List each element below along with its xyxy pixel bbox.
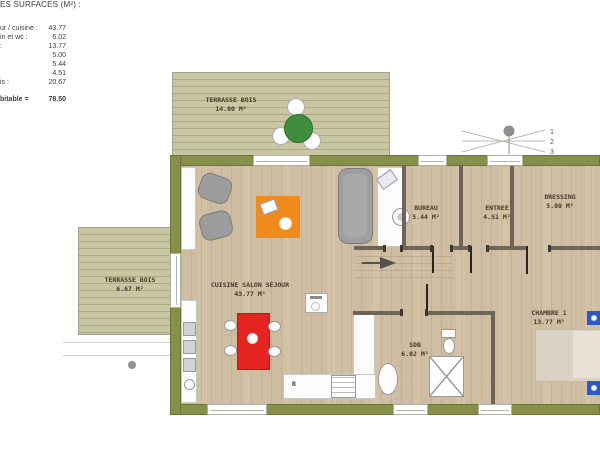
window	[253, 155, 310, 166]
corridor-line	[356, 256, 452, 257]
door-leaf	[526, 246, 528, 274]
door-jamb	[548, 245, 551, 252]
room-label-terrasse-top: TERRASSE BOIS 14.00 M²	[206, 96, 257, 114]
door-jamb	[450, 245, 453, 252]
bed-pillow-zone	[573, 331, 600, 378]
table-row: 4.51	[0, 69, 66, 78]
rug-bowl	[279, 217, 292, 230]
table-row: ur / cuisine :43.77	[0, 24, 66, 33]
corridor-line	[356, 277, 452, 278]
site-line	[63, 342, 170, 343]
partition	[354, 246, 385, 250]
partition	[459, 166, 463, 250]
toilet-tank	[441, 329, 456, 338]
window	[207, 404, 267, 415]
partition	[427, 311, 495, 315]
table-row: is :20.67	[0, 78, 66, 87]
window	[478, 404, 512, 415]
surface-table-rows: ur / cuisine :43.77 in et wc :6.02 :13.7…	[0, 24, 66, 104]
kitchen-sink	[184, 379, 195, 390]
toilet-bowl	[443, 338, 455, 354]
floor-plan-page: ES SURFACES (M²) : ur / cuisine :43.77 i…	[0, 0, 600, 450]
kitchen-counter-vertical	[353, 313, 375, 375]
window-detail-marker: 1 2 3	[455, 120, 565, 162]
table-row: 5.44	[0, 60, 66, 69]
marker-number: 1	[550, 129, 554, 136]
partition	[488, 246, 528, 250]
oven-hatch	[331, 375, 356, 398]
room-label-sejour: CUISINE SALON SÉJOUR 43.77 M²	[211, 281, 289, 299]
door-jamb	[486, 245, 489, 252]
door-jamb	[383, 245, 386, 252]
room-label-sdb: SDB 6.02 M²	[401, 341, 428, 359]
site-line	[63, 355, 170, 356]
room-label-bureau: BUREAU 5.44 M²	[412, 204, 439, 222]
window	[418, 155, 447, 166]
sofa-seat	[343, 174, 367, 237]
washbasin	[378, 363, 398, 395]
partition	[353, 311, 403, 315]
corridor-line	[356, 270, 452, 271]
door-jamb	[468, 245, 471, 252]
table-row: :13.77	[0, 42, 66, 51]
nightstand-lamp	[591, 385, 597, 391]
wood-stove-ring	[311, 302, 320, 311]
table-total-row: bitable =78.50	[0, 95, 66, 104]
kitchen-appliance	[183, 340, 196, 354]
glazed-door	[170, 253, 181, 308]
room-label-dressing: DRESSING 5.00 M²	[544, 193, 575, 211]
direction-arrow-icon	[380, 257, 396, 269]
detail-circle-icon	[504, 126, 515, 137]
room-label-chambre1: CHAMBRE 1 13.77 M²	[531, 309, 566, 327]
direction-arrow-tail	[362, 262, 382, 264]
site-dot	[128, 361, 136, 369]
door-leaf	[426, 284, 428, 311]
shower	[429, 356, 464, 397]
door-jamb	[400, 245, 403, 252]
table-row: 5.00	[0, 51, 66, 60]
kitchen-appliance	[183, 358, 196, 372]
marker-number: 3	[550, 149, 554, 156]
window	[393, 404, 428, 415]
partition	[491, 311, 495, 404]
room-label-entree: ENTREE 4.51 M²	[483, 204, 510, 222]
dining-plate	[247, 333, 258, 344]
kitchen-appliance	[183, 322, 196, 336]
kitchen-sideboard	[181, 167, 196, 250]
room-label-terrasse-left: TERRASSE BOIS 6.67 M²	[105, 276, 156, 294]
dining-chair	[224, 320, 237, 331]
door-jamb	[400, 309, 403, 316]
dining-chair	[268, 346, 281, 357]
door-jamb	[425, 309, 428, 316]
partition	[550, 246, 600, 250]
wood-stove-label-mark	[310, 296, 322, 299]
nightstand-lamp	[591, 315, 597, 321]
round-garden-table	[284, 114, 313, 143]
kitchen-counter-bottom	[283, 374, 376, 399]
surface-table: ES SURFACES (M²) : ur / cuisine :43.77 i…	[0, 0, 66, 9]
fridge-label: R	[292, 380, 296, 389]
door-jamb	[430, 245, 433, 252]
dining-chair	[224, 345, 237, 356]
table-row: in et wc :6.02	[0, 33, 66, 42]
partition	[402, 246, 432, 250]
surface-table-title: ES SURFACES (M²) :	[0, 0, 66, 9]
partition	[402, 166, 406, 250]
dining-chair	[268, 321, 281, 332]
marker-number: 2	[550, 139, 554, 146]
